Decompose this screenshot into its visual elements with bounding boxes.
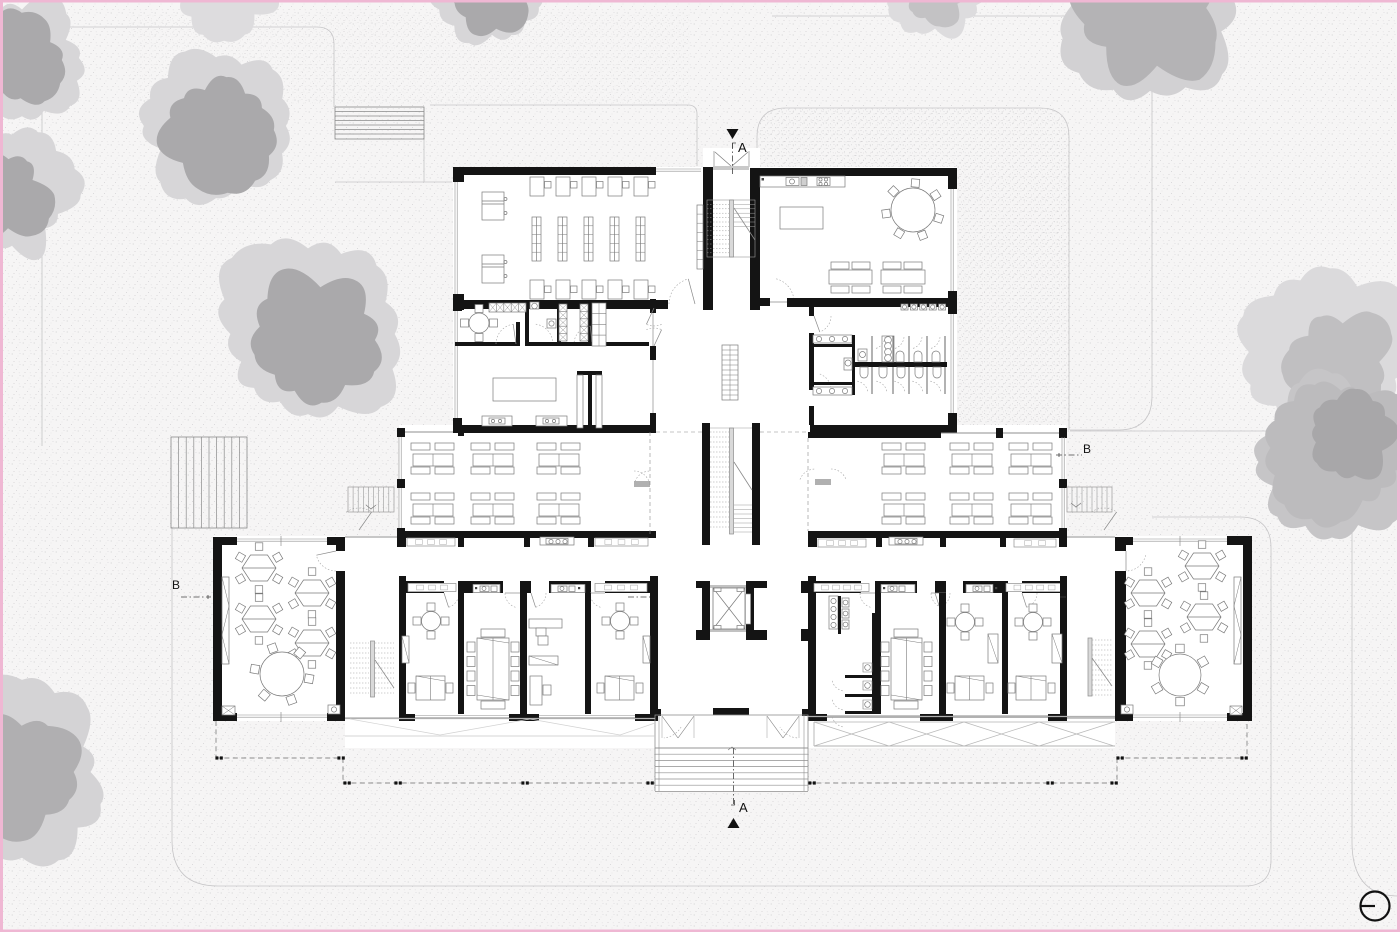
svg-text:B: B bbox=[172, 578, 180, 592]
svg-text:A: A bbox=[738, 140, 747, 155]
svg-text:B: B bbox=[1083, 442, 1091, 456]
svg-text:A: A bbox=[739, 800, 748, 815]
